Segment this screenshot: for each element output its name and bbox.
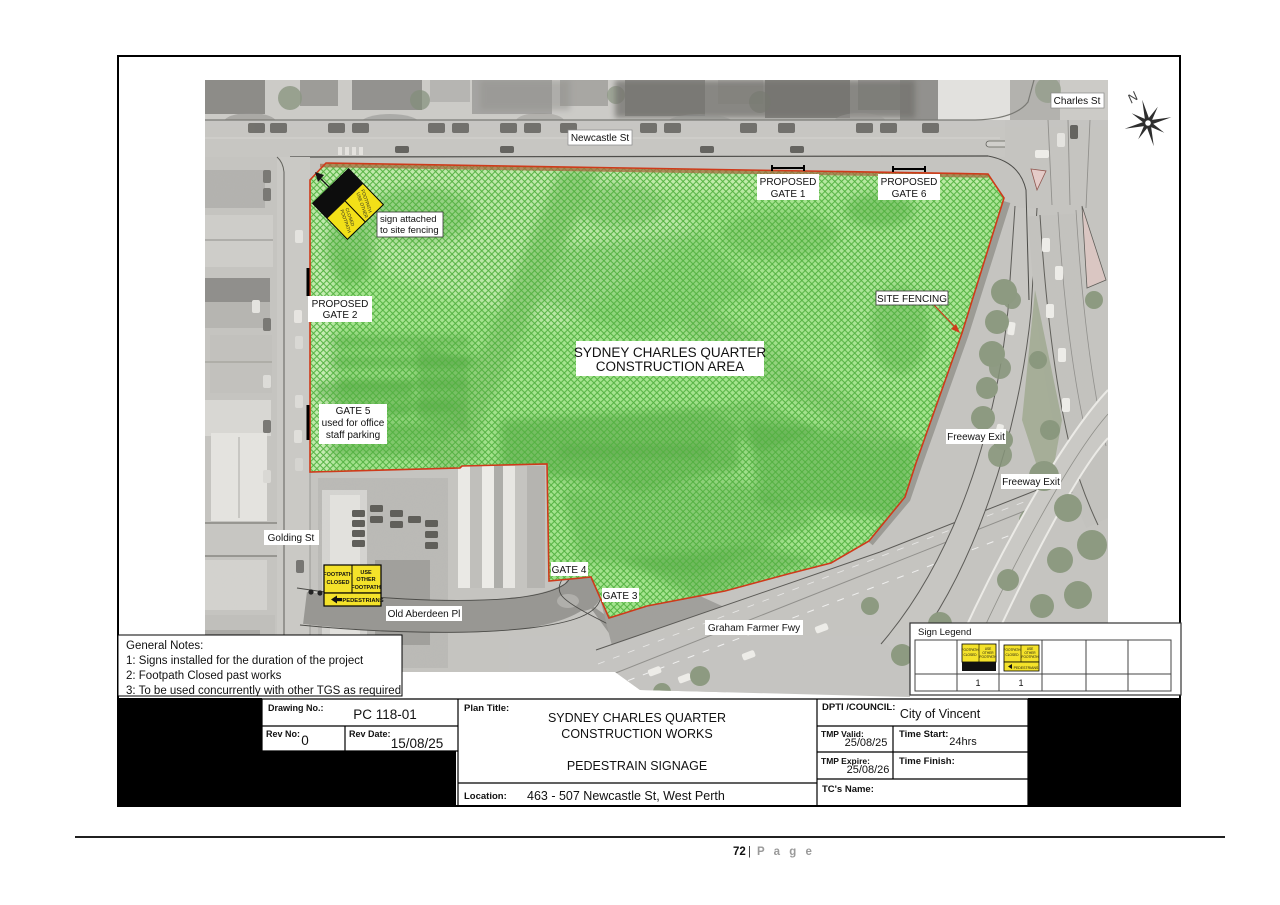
svg-text:24hrs: 24hrs — [949, 736, 977, 748]
svg-text:Newcastle St: Newcastle St — [571, 133, 630, 144]
svg-text:SYDNEY CHARLES QUARTER: SYDNEY CHARLES QUARTER — [548, 711, 726, 725]
svg-text:PEDESTRAIN SIGNAGE: PEDESTRAIN SIGNAGE — [567, 759, 707, 773]
svg-text:Old Aberdeen Pl: Old Aberdeen Pl — [388, 609, 461, 620]
svg-text:Golding St: Golding St — [268, 533, 315, 544]
svg-text:FOOTPATH: FOOTPATH — [1022, 655, 1040, 659]
svg-text:|: | — [748, 846, 751, 858]
svg-text:3: To be used concurrently wit: 3: To be used concurrently with other TG… — [126, 685, 401, 697]
svg-text:Time Finish:: Time Finish: — [899, 756, 955, 767]
svg-text:used for office: used for office — [322, 418, 385, 429]
svg-text:Freeway Exit: Freeway Exit — [1002, 477, 1060, 488]
svg-text:sign attached: sign attached — [380, 214, 437, 225]
svg-text:PC 118-01: PC 118-01 — [353, 707, 417, 722]
svg-text:SITE FENCING: SITE FENCING — [877, 294, 947, 305]
svg-text:1: Signs installed for the dur: 1: Signs installed for the duration of t… — [126, 655, 364, 667]
svg-text:Graham Farmer Fwy: Graham Farmer Fwy — [708, 623, 800, 634]
svg-text:PEDESTRIANS: PEDESTRIANS — [342, 598, 383, 604]
svg-text:City of Vincent: City of Vincent — [900, 707, 981, 721]
svg-text:Location:: Location: — [464, 791, 507, 802]
svg-text:SYDNEY CHARLES QUARTER: SYDNEY CHARLES QUARTER — [574, 345, 767, 360]
svg-text:CONSTRUCTION AREA: CONSTRUCTION AREA — [596, 359, 745, 374]
svg-text:TC's Name:: TC's Name: — [822, 784, 874, 795]
svg-text:OTHER: OTHER — [356, 577, 375, 583]
svg-text:USE: USE — [360, 570, 372, 576]
svg-text:1: 1 — [1018, 678, 1023, 688]
svg-text:GATE 4: GATE 4 — [552, 565, 587, 576]
svg-text:Time Start:: Time Start: — [899, 729, 948, 740]
svg-text:FOOTPATH: FOOTPATH — [323, 572, 352, 578]
svg-text:to site fencing: to site fencing — [380, 225, 439, 236]
svg-text:Sign Legend: Sign Legend — [918, 627, 971, 638]
svg-text:1: 1 — [975, 678, 980, 688]
svg-text:CLOSED: CLOSED — [1005, 653, 1019, 657]
svg-text:15/08/25: 15/08/25 — [391, 736, 444, 751]
svg-text:GATE 6: GATE 6 — [892, 189, 927, 200]
svg-text:P a g e: P a g e — [757, 846, 815, 858]
svg-text:CLOSED: CLOSED — [963, 653, 977, 657]
svg-text:Rev Date:: Rev Date: — [349, 729, 391, 739]
svg-text:PROPOSED: PROPOSED — [760, 177, 817, 188]
svg-text:General Notes:: General Notes: — [126, 640, 203, 652]
svg-text:25/08/26: 25/08/26 — [847, 764, 890, 776]
svg-text:Freeway Exit: Freeway Exit — [947, 432, 1005, 443]
svg-text:Rev No:: Rev No: — [266, 729, 300, 739]
svg-text:Drawing No.:: Drawing No.: — [268, 703, 324, 713]
svg-text:0: 0 — [301, 733, 309, 748]
svg-text:PROPOSED: PROPOSED — [881, 177, 938, 188]
svg-text:25/08/25: 25/08/25 — [845, 737, 888, 749]
svg-text:FOOTPATH: FOOTPATH — [962, 648, 980, 652]
svg-text:FOOTPATH: FOOTPATH — [980, 655, 998, 659]
svg-text:Charles St: Charles St — [1054, 96, 1101, 107]
svg-text:GATE 2: GATE 2 — [323, 310, 358, 321]
svg-text:2: Footpath Closed past works: 2: Footpath Closed past works — [126, 670, 282, 682]
svg-text:72: 72 — [733, 846, 746, 858]
svg-text:463 - 507 Newcastle St, West P: 463 - 507 Newcastle St, West Perth — [527, 789, 725, 803]
svg-text:CONSTRUCTION WORKS: CONSTRUCTION WORKS — [561, 727, 712, 741]
svg-text:staff parking: staff parking — [326, 430, 380, 441]
svg-text:CLOSED: CLOSED — [327, 580, 350, 586]
svg-text:GATE 5: GATE 5 — [336, 406, 371, 417]
svg-text:N: N — [1124, 88, 1141, 106]
svg-text:Plan Title:: Plan Title: — [464, 703, 509, 714]
svg-text:FOOTPATH: FOOTPATH — [1004, 648, 1022, 652]
svg-text:FOOTPATH: FOOTPATH — [351, 585, 380, 591]
svg-text:PEDESTRIANS: PEDESTRIANS — [1014, 666, 1039, 670]
svg-text:DPTI /COUNCIL:: DPTI /COUNCIL: — [822, 702, 895, 713]
svg-text:GATE 3: GATE 3 — [603, 591, 638, 602]
svg-text:GATE 1: GATE 1 — [771, 189, 806, 200]
svg-text:PROPOSED: PROPOSED — [312, 299, 369, 310]
